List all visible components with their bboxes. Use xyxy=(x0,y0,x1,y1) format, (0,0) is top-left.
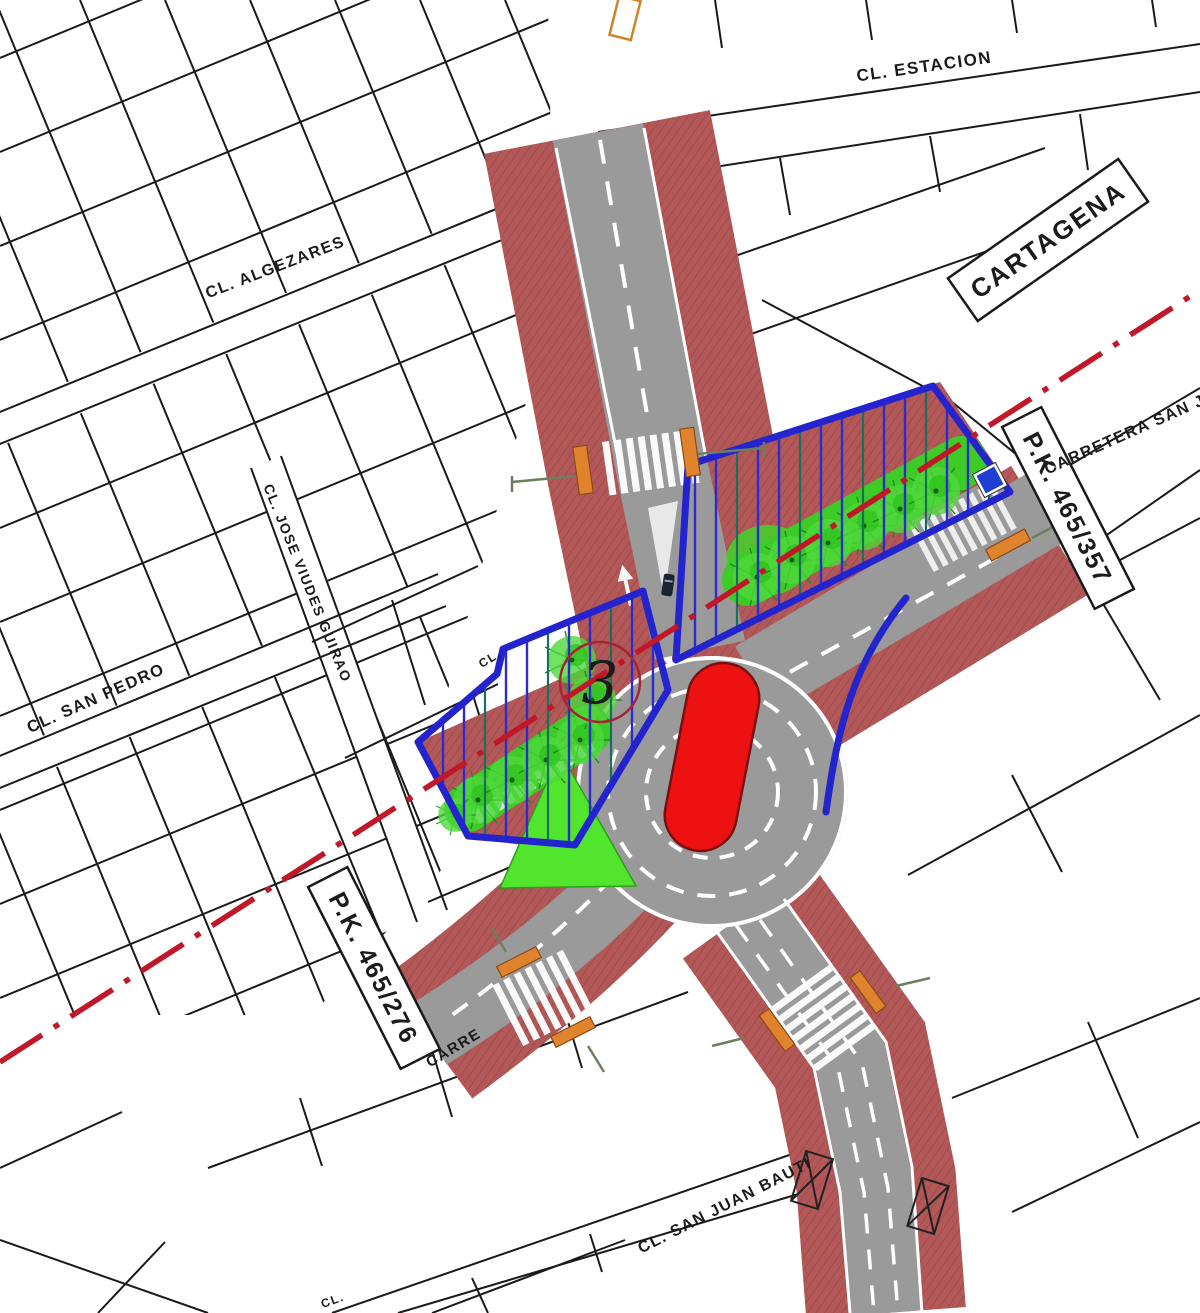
street-cl-bottom: CL. xyxy=(319,1290,346,1311)
street-carretera-san-javier: CARRETERA SAN JAVIER xyxy=(1042,370,1200,479)
plan-map: 3 xyxy=(0,0,1200,1313)
kiosk-outline xyxy=(609,0,640,40)
cartagena-sign-label: CARTAGENA xyxy=(965,175,1131,304)
cartagena-sign: CARTAGENA xyxy=(948,159,1148,321)
zone-marker-number: 3 xyxy=(582,649,619,717)
plan-svg: 3 xyxy=(0,0,1200,1313)
street-estacion: CL. ESTACION xyxy=(855,48,993,86)
street-san-juan: CL. SAN JUAN BAUTI xyxy=(635,1155,814,1257)
